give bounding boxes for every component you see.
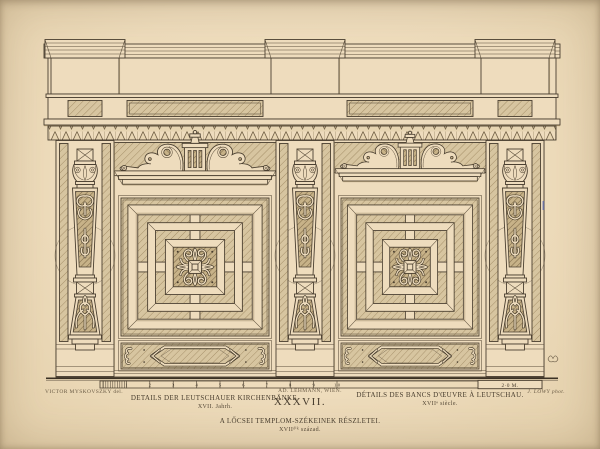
caption-hungarian-title: A LŐCSEI TEMPLOM-SZÉKEINEK RÉSZLETEI. — [190, 417, 410, 425]
engraving-drawing: 1234567891·0 2·0 M. — [0, 0, 600, 449]
scale-tick-label: 1·0 — [334, 383, 341, 388]
scale-tick-label: 6 — [242, 383, 245, 388]
plate-number: XXXVII. — [255, 396, 345, 408]
printers-mark — [548, 356, 558, 362]
caption-french: DÉTAILS DES BANCS D'ŒUVRE À LEUTSCHAU. X… — [340, 391, 540, 408]
cornice-ressaut-right — [475, 40, 555, 59]
caption-french-title: DÉTAILS DES BANCS D'ŒUVRE À LEUTSCHAU. — [340, 391, 540, 399]
lozenge-rail-left — [121, 343, 269, 369]
plate-page: 1234567891·0 2·0 M. VICTOR MYSKOVSZKY de… — [0, 0, 600, 449]
ink-mark — [543, 201, 545, 210]
scale-tick-label: 3 — [172, 383, 175, 388]
scale-tick-label: 7 — [266, 383, 269, 388]
wainscot-body — [46, 130, 558, 380]
coffered-panel-left — [121, 198, 269, 336]
scale-tick-labels: 1234567891·0 — [125, 383, 341, 388]
coffered-panel-right — [341, 198, 479, 336]
caption-french-subtitle: XVIIᵉ siècle. — [340, 401, 540, 408]
cornice-ressaut-middle — [265, 40, 345, 59]
scale-tick-label: 8 — [289, 383, 292, 388]
caption-hungarian-subtitle: XVIIᵈⁱᵏ század. — [190, 427, 410, 434]
caption-hungarian: A LŐCSEI TEMPLOM-SZÉKEINEK RÉSZLETEI. XV… — [190, 417, 410, 434]
cornice-ressaut-left — [45, 40, 125, 59]
scale-tick-label: 4 — [195, 383, 198, 388]
scale-tick-label: 5 — [219, 383, 222, 388]
scale-tick-label: 2 — [149, 383, 152, 388]
entablature — [44, 40, 560, 141]
scale-tick-label: 9 — [312, 383, 315, 388]
imbricated-band — [48, 126, 556, 140]
scale-tick-label: 1 — [125, 383, 128, 388]
lozenge-rail-right — [341, 343, 479, 369]
